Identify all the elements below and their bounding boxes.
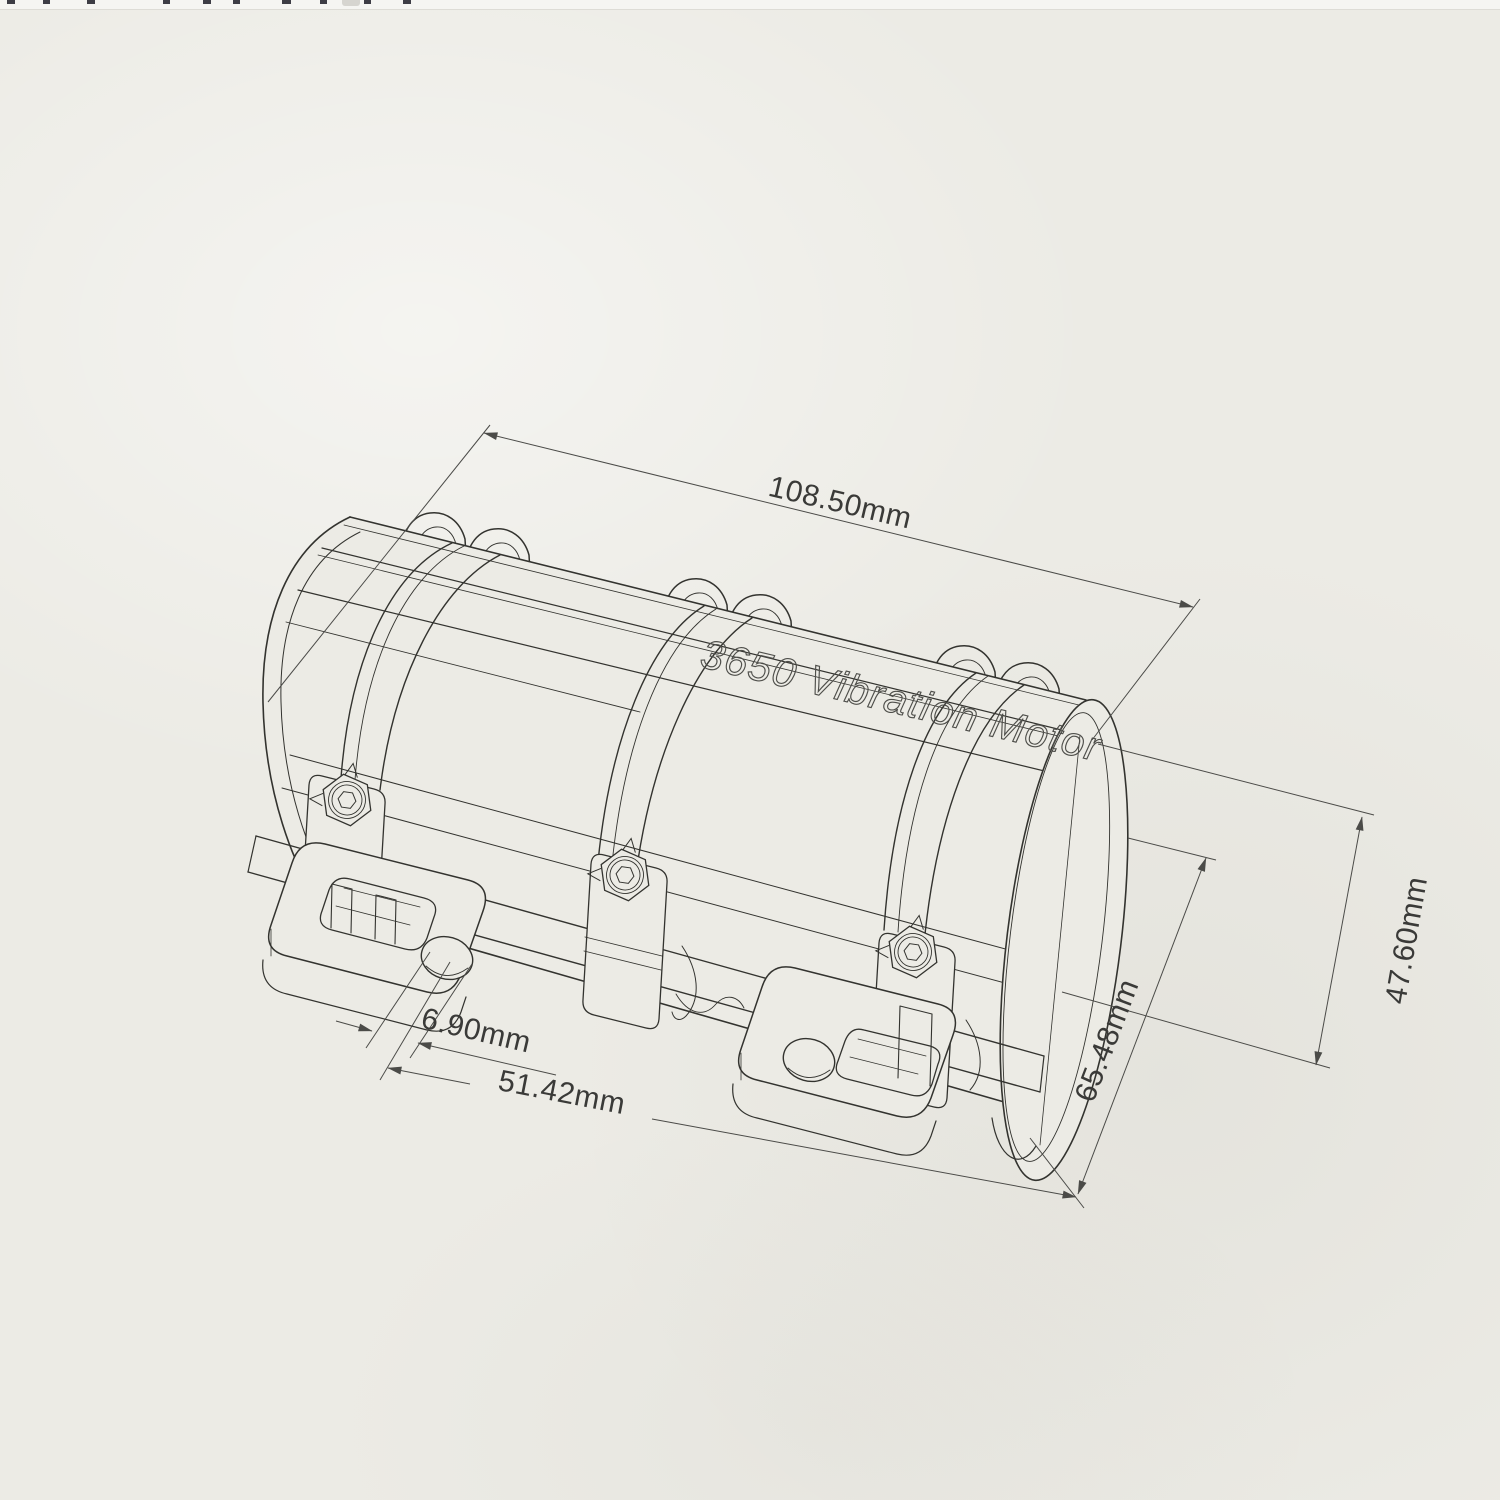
crop-mark	[43, 0, 50, 4]
crop-blob	[342, 0, 360, 6]
dim-text-hole-diameter: 6.90mm	[418, 1002, 534, 1060]
dim-text-height: 47.60mm	[1379, 874, 1434, 1006]
crop-mark	[163, 0, 170, 4]
dim-text-length: 108.50mm	[765, 470, 914, 535]
crop-mark	[87, 0, 95, 4]
crop-mark	[233, 0, 240, 4]
crop-mark	[320, 0, 327, 4]
crop-mark	[364, 0, 371, 4]
technical-drawing: 3650 Vibration Motor 108.50mm 47.60mm 65…	[0, 0, 1500, 1500]
motor-body-fill	[263, 517, 1123, 1128]
top-crop-strip	[0, 0, 1500, 10]
crop-mark	[7, 0, 15, 4]
crop-mark	[203, 0, 211, 4]
crop-mark	[282, 0, 291, 4]
page: { "page": { "background_color": "#ecebe5…	[0, 0, 1500, 1500]
crop-mark	[403, 0, 411, 4]
vibration-motor: 3650 Vibration Motor	[248, 513, 1150, 1187]
dim-text-hole-spacing: 51.42mm	[496, 1064, 628, 1121]
